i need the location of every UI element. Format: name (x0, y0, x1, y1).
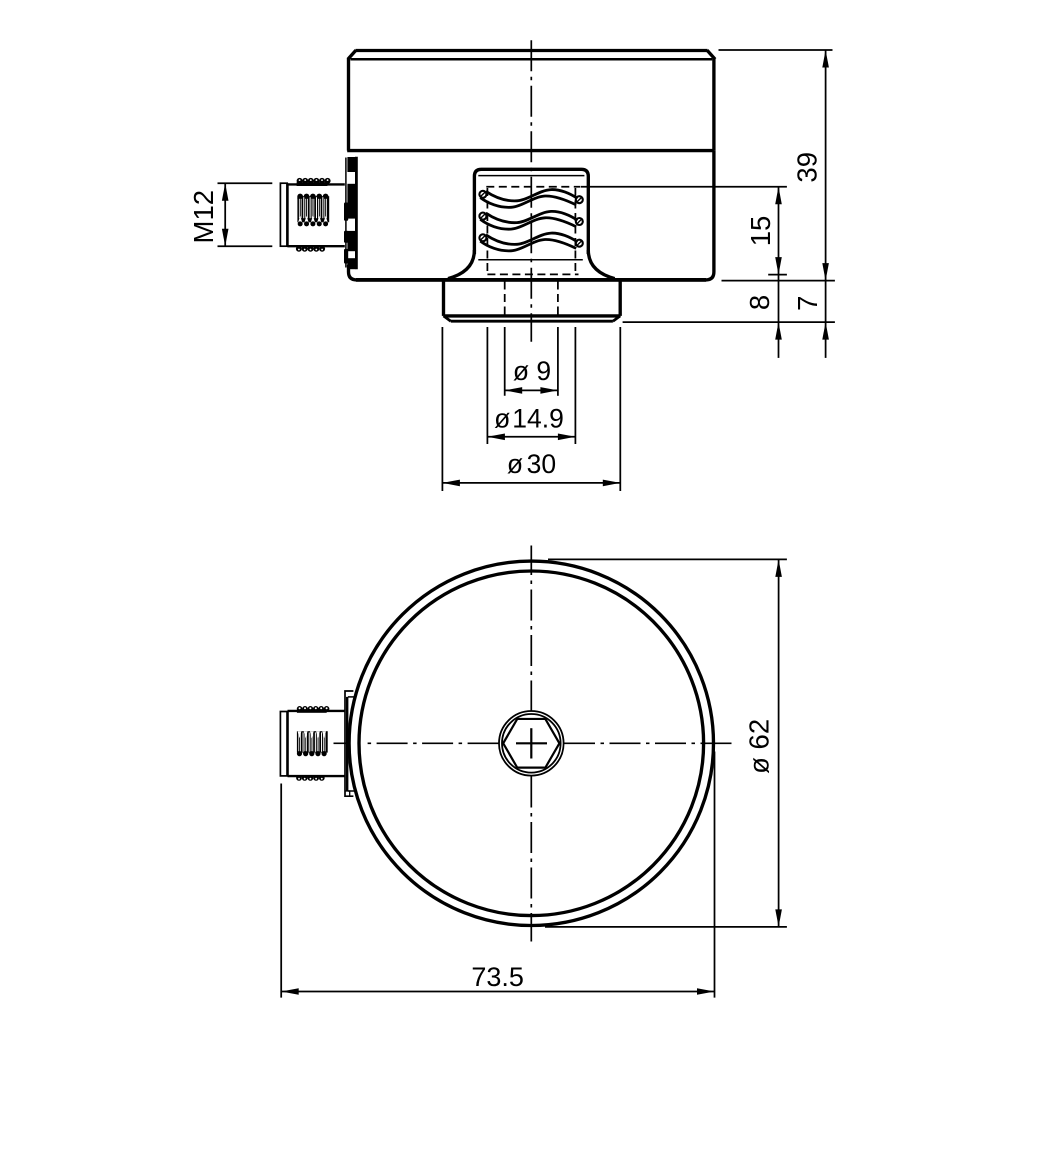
svg-text:ø14.9: ø14.9 (494, 403, 564, 433)
svg-text:7: 7 (792, 296, 823, 311)
svg-text:15: 15 (745, 216, 776, 247)
svg-text:73.5: 73.5 (471, 962, 524, 992)
svg-text:ø 62: ø 62 (744, 719, 775, 774)
svg-text:ø30: ø30 (507, 449, 556, 479)
svg-text:ø 9: ø 9 (513, 356, 551, 386)
svg-text:M12: M12 (188, 190, 219, 244)
svg-text:39: 39 (792, 152, 823, 183)
svg-text:8: 8 (744, 295, 775, 310)
